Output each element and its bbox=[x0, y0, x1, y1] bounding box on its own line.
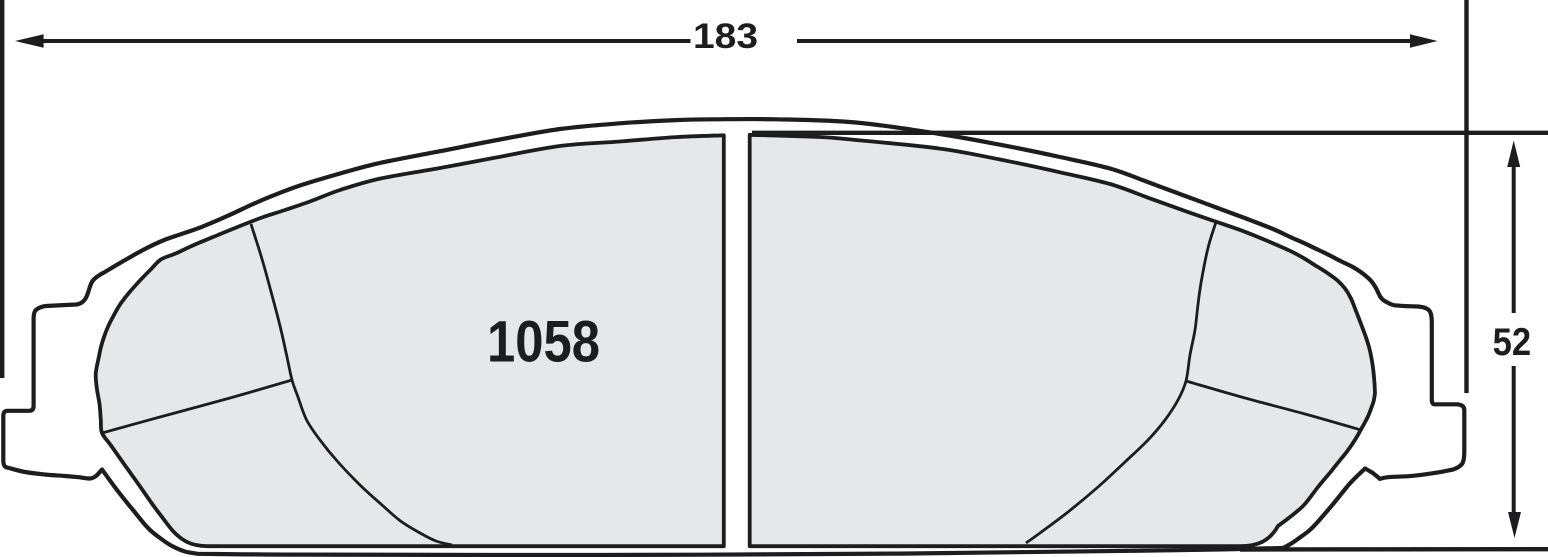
svg-text:183: 183 bbox=[693, 17, 758, 56]
svg-text:1058: 1058 bbox=[487, 310, 600, 375]
svg-text:52: 52 bbox=[1493, 321, 1532, 364]
